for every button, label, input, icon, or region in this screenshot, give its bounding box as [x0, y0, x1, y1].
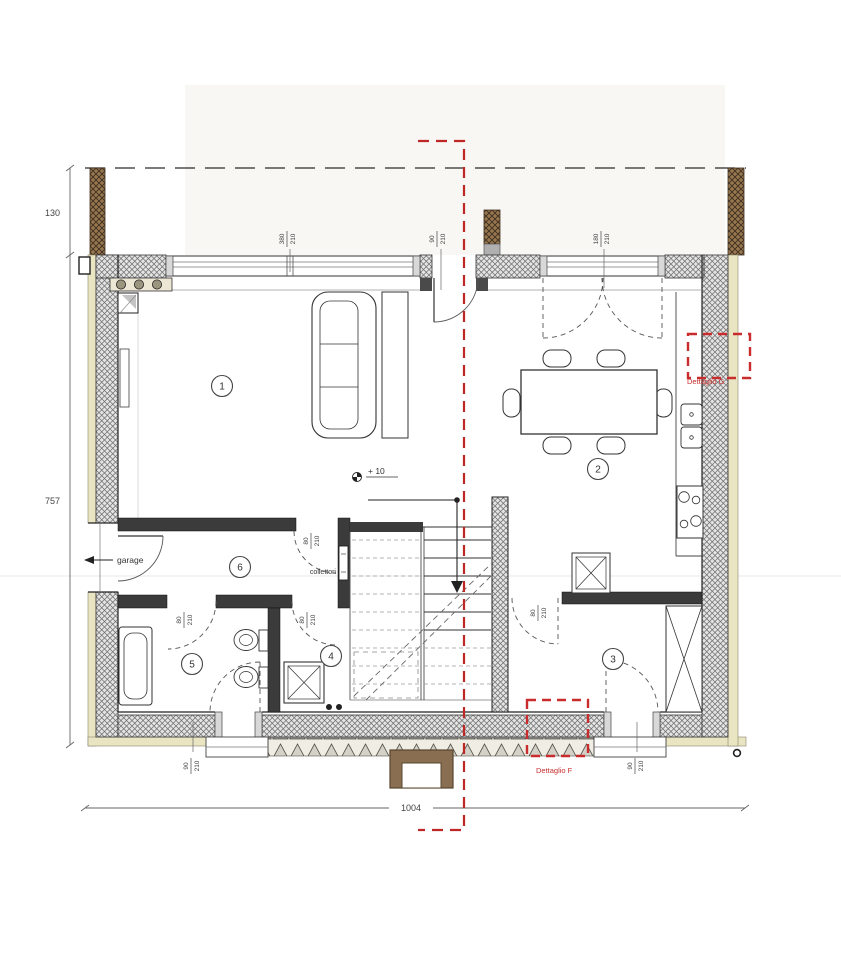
svg-text:90: 90 [627, 762, 634, 770]
floor-plan-canvas: 130 757 1004 [0, 0, 841, 960]
column-porch [484, 210, 500, 255]
opening-dimensions: 380 210 90 210 180 210 80 210 80 210 80 … [176, 231, 645, 774]
sofa [312, 292, 376, 438]
collettori-cabinet [339, 546, 348, 580]
kitchen-window-swing [543, 278, 662, 338]
garage-label: garage [117, 555, 144, 565]
pantry-column [572, 553, 610, 593]
drain [734, 750, 741, 757]
side-table [382, 292, 408, 438]
dim-bath-ext-door: 90 210 [183, 758, 201, 774]
room-circle-5: 5 [182, 654, 203, 675]
svg-text:80: 80 [299, 616, 306, 624]
stairs [350, 497, 492, 700]
svg-text:210: 210 [440, 233, 447, 244]
watermark-area [185, 85, 725, 255]
column-top-left [90, 168, 105, 255]
svg-text:6: 6 [237, 563, 243, 574]
room3-ext-door [594, 660, 666, 757]
detail-right-label: Dettaglio G [687, 377, 725, 386]
left-dimension-line [66, 165, 74, 748]
dim-room3-ext-door: 90 210 [627, 758, 645, 774]
toilet [234, 667, 268, 689]
svg-text:210: 210 [310, 614, 317, 625]
room-circle-6: 6 [230, 557, 251, 578]
understair-storage [354, 652, 418, 698]
svg-text:80: 80 [303, 537, 310, 545]
svg-text:210: 210 [187, 614, 194, 625]
corner-pillar [118, 293, 138, 313]
dim-room3-door: 80 210 [530, 605, 548, 621]
stair-wall [492, 497, 508, 712]
svg-text:210: 210 [604, 233, 611, 244]
svg-text:80: 80 [530, 609, 537, 617]
stair-direction-arrow [368, 497, 463, 593]
svg-text:210: 210 [541, 607, 548, 618]
lintel-shutter-box [110, 278, 172, 291]
svg-text:380: 380 [279, 233, 286, 244]
svg-text:180: 180 [593, 233, 600, 244]
svg-text:210: 210 [314, 535, 321, 546]
garage-annotation: garage [84, 555, 144, 565]
svg-text:5: 5 [189, 660, 195, 671]
collettori-label: collettori [310, 569, 337, 576]
washer-connections [326, 704, 342, 710]
dim-1004: 1004 [401, 803, 421, 813]
dim-757: 757 [45, 496, 60, 506]
entrance-steps [390, 750, 453, 788]
room-circle-1: 1 [212, 376, 233, 397]
level-label: + 10 [368, 466, 385, 476]
floor-plan-drawing: 130 757 1004 [0, 0, 841, 960]
svg-text:90: 90 [429, 235, 436, 243]
bidet [234, 630, 268, 652]
bathtub [119, 627, 152, 705]
svg-text:210: 210 [638, 760, 645, 771]
downpipe [79, 257, 90, 274]
svg-text:3: 3 [610, 655, 616, 666]
svg-text:210: 210 [194, 760, 201, 771]
svg-text:4: 4 [328, 652, 334, 663]
svg-text:2: 2 [595, 465, 601, 476]
dim-bath-door: 80 210 [176, 612, 194, 628]
svg-text:90: 90 [183, 762, 190, 770]
wardrobe [666, 606, 702, 712]
kitchen-window [540, 256, 665, 276]
level-marker: + 10 [353, 466, 399, 482]
shower [284, 662, 324, 703]
svg-text:80: 80 [176, 616, 183, 624]
svg-text:1: 1 [219, 382, 225, 393]
entry-door [420, 278, 488, 322]
dim-hall-door: 80 210 [303, 533, 321, 549]
radiator [120, 349, 129, 407]
dim-130: 130 [45, 208, 60, 218]
dining-set [503, 350, 672, 454]
room-circle-2: 2 [588, 459, 609, 480]
svg-text:210: 210 [290, 233, 297, 244]
kitchen-sink [681, 404, 702, 448]
room-circle-3: 3 [603, 649, 624, 670]
dim-shower-room-door: 80 210 [299, 612, 317, 628]
detail-bottom-label: Dettaglio F [536, 766, 573, 775]
column-top-right [728, 168, 744, 255]
interior-walls [118, 518, 702, 712]
room3-door-swing [512, 598, 558, 644]
living-window [166, 256, 420, 276]
room-circle-4: 4 [321, 646, 342, 667]
stove [677, 486, 703, 538]
